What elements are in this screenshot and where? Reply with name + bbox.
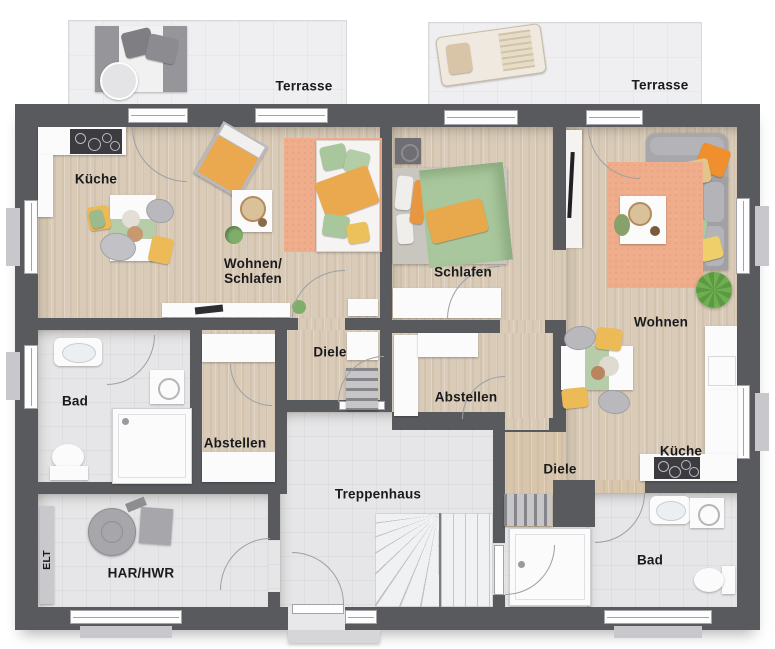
stairs-winder <box>375 513 441 607</box>
tv <box>567 152 574 218</box>
plant-deco <box>614 214 630 236</box>
table-decor <box>122 210 140 228</box>
wall <box>384 400 392 412</box>
dining-table-right <box>561 346 633 390</box>
window-sill <box>755 393 769 451</box>
opening-floor <box>553 250 566 320</box>
sink <box>54 338 102 366</box>
washing-machine-right <box>690 498 724 528</box>
staircase <box>375 513 493 607</box>
wall-schlafen-wohnen <box>553 127 566 250</box>
entrance-step <box>288 630 380 643</box>
room-label-abstellen-left: Abstellen <box>204 436 267 451</box>
kitchen-counter-side <box>38 155 53 217</box>
shower <box>112 408 192 484</box>
shoe-rack-right <box>504 494 552 526</box>
shelf <box>394 335 418 416</box>
window <box>604 610 712 624</box>
terrace-tray-table <box>100 62 138 100</box>
window-sill <box>6 352 20 400</box>
washing-machine <box>150 370 184 404</box>
window <box>736 385 750 459</box>
laptop <box>195 305 224 315</box>
wall <box>268 494 280 540</box>
shower-drain <box>122 418 129 425</box>
tank-lid <box>101 521 123 543</box>
terrace-window <box>444 110 518 125</box>
room-label-wohnen-schlafen: Wohnen/ Schlafen <box>224 256 282 286</box>
chair-yellow <box>561 387 589 410</box>
sink-basin <box>62 343 96 363</box>
room-label-diele-left: Diele <box>313 345 346 360</box>
wall <box>38 318 298 330</box>
coffee-table <box>620 196 666 244</box>
wall <box>493 595 505 607</box>
window-sill <box>6 208 20 266</box>
sink-right <box>650 496 690 524</box>
wall <box>345 318 392 330</box>
fridge <box>708 356 736 386</box>
door-gap-floor <box>595 480 645 493</box>
lounger-blanket <box>498 29 535 71</box>
washer-door <box>158 378 180 400</box>
bed <box>393 168 507 264</box>
wall <box>553 480 595 527</box>
sink-basin <box>656 501 686 521</box>
room-label-wohnen-right: Wohnen <box>634 315 688 330</box>
cup <box>258 218 267 227</box>
wall <box>549 418 553 430</box>
stove-right <box>654 457 700 479</box>
shelf <box>202 334 275 362</box>
toilet-tank <box>50 466 88 480</box>
entrance-side-window <box>345 610 377 624</box>
hvac-unit <box>139 507 173 545</box>
wall <box>645 480 737 493</box>
shelf <box>202 452 275 482</box>
terrace-lounge-rug <box>95 26 187 92</box>
room-label-schlafen-right: Schlafen <box>434 265 492 280</box>
room-label-treppenhaus: Treppenhaus <box>335 487 421 502</box>
plant <box>225 226 243 244</box>
cabinet <box>348 299 378 316</box>
desk <box>162 303 290 317</box>
tv-board <box>566 130 582 248</box>
stairs-treads <box>441 513 493 607</box>
label-line-2: Schlafen <box>224 271 282 286</box>
stove <box>70 129 122 154</box>
window <box>24 200 38 274</box>
kitchen-tall-units <box>705 326 737 390</box>
label-line-1: Wohnen/ <box>224 256 282 271</box>
window-sill <box>755 206 769 266</box>
diele-cabinet <box>347 332 378 360</box>
room-label-kueche-left: Küche <box>75 172 117 187</box>
terrace-door <box>586 110 643 125</box>
terrace-door <box>128 108 188 123</box>
room-label-abstellen-right: Abstellen <box>435 390 498 405</box>
cushion-yellow <box>345 221 370 245</box>
window <box>24 345 38 409</box>
plant-large <box>696 272 732 308</box>
window <box>70 610 182 624</box>
tray <box>628 202 652 226</box>
bedside-speaker <box>395 138 421 164</box>
room-label-kueche-right: Küche <box>660 444 702 459</box>
vase <box>650 226 660 236</box>
floor-plan: Terrasse Terrasse <box>0 0 775 649</box>
terrace-door <box>255 108 328 123</box>
door-gap-floor <box>500 320 545 333</box>
shelf <box>418 333 478 357</box>
room-label-terrasse-right: Terrasse <box>632 78 689 93</box>
washer-door <box>698 504 720 526</box>
room-label-har-hwr: HAR/HWR <box>108 566 175 581</box>
window <box>736 198 750 274</box>
entrance-door-leaf <box>292 604 344 614</box>
lounger-pillow <box>445 42 473 75</box>
wall <box>268 592 280 607</box>
door-gap-floor <box>298 318 345 330</box>
door-leaf <box>494 545 504 595</box>
wall <box>392 320 500 333</box>
table-bowl <box>591 366 605 380</box>
throw-orange <box>314 165 380 222</box>
room-label-diele-right: Diele <box>543 462 576 477</box>
room-label-terrasse-left: Terrasse <box>276 79 333 94</box>
door-gap-floor <box>505 418 549 430</box>
boiler-tank <box>88 508 136 556</box>
chair-yellow <box>595 327 623 352</box>
room-label-bad-left: Bad <box>62 394 88 409</box>
sofa-cushion <box>704 182 724 222</box>
speaker-cone <box>401 144 419 162</box>
daybed <box>316 140 380 252</box>
window-sill <box>80 626 172 638</box>
wall <box>280 400 338 412</box>
room-label-bad-right: Bad <box>637 553 663 568</box>
room-label-elt: ELT <box>41 550 53 570</box>
side-table <box>232 190 272 232</box>
kitchen-counter-right <box>705 390 737 456</box>
window-sill <box>614 626 702 638</box>
toilet-bowl-right <box>694 568 724 592</box>
